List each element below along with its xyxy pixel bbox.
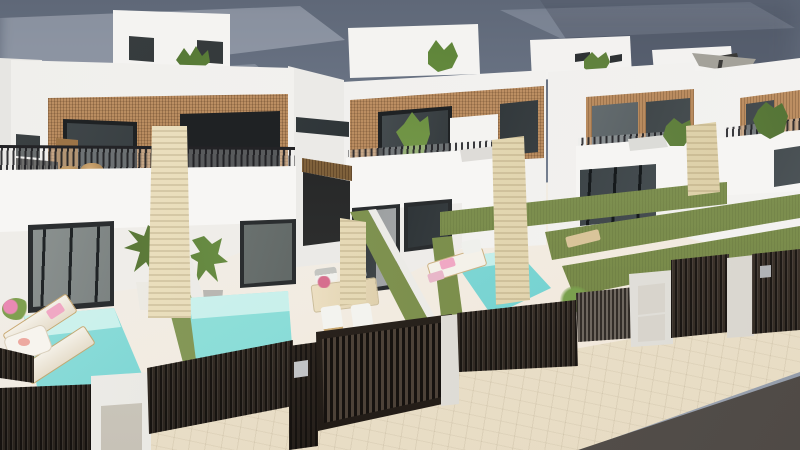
plate [18, 338, 30, 346]
flower-pot [2, 298, 30, 320]
dining-chair [320, 305, 343, 333]
table-flowers [316, 276, 332, 288]
architectural-render [0, 0, 800, 450]
